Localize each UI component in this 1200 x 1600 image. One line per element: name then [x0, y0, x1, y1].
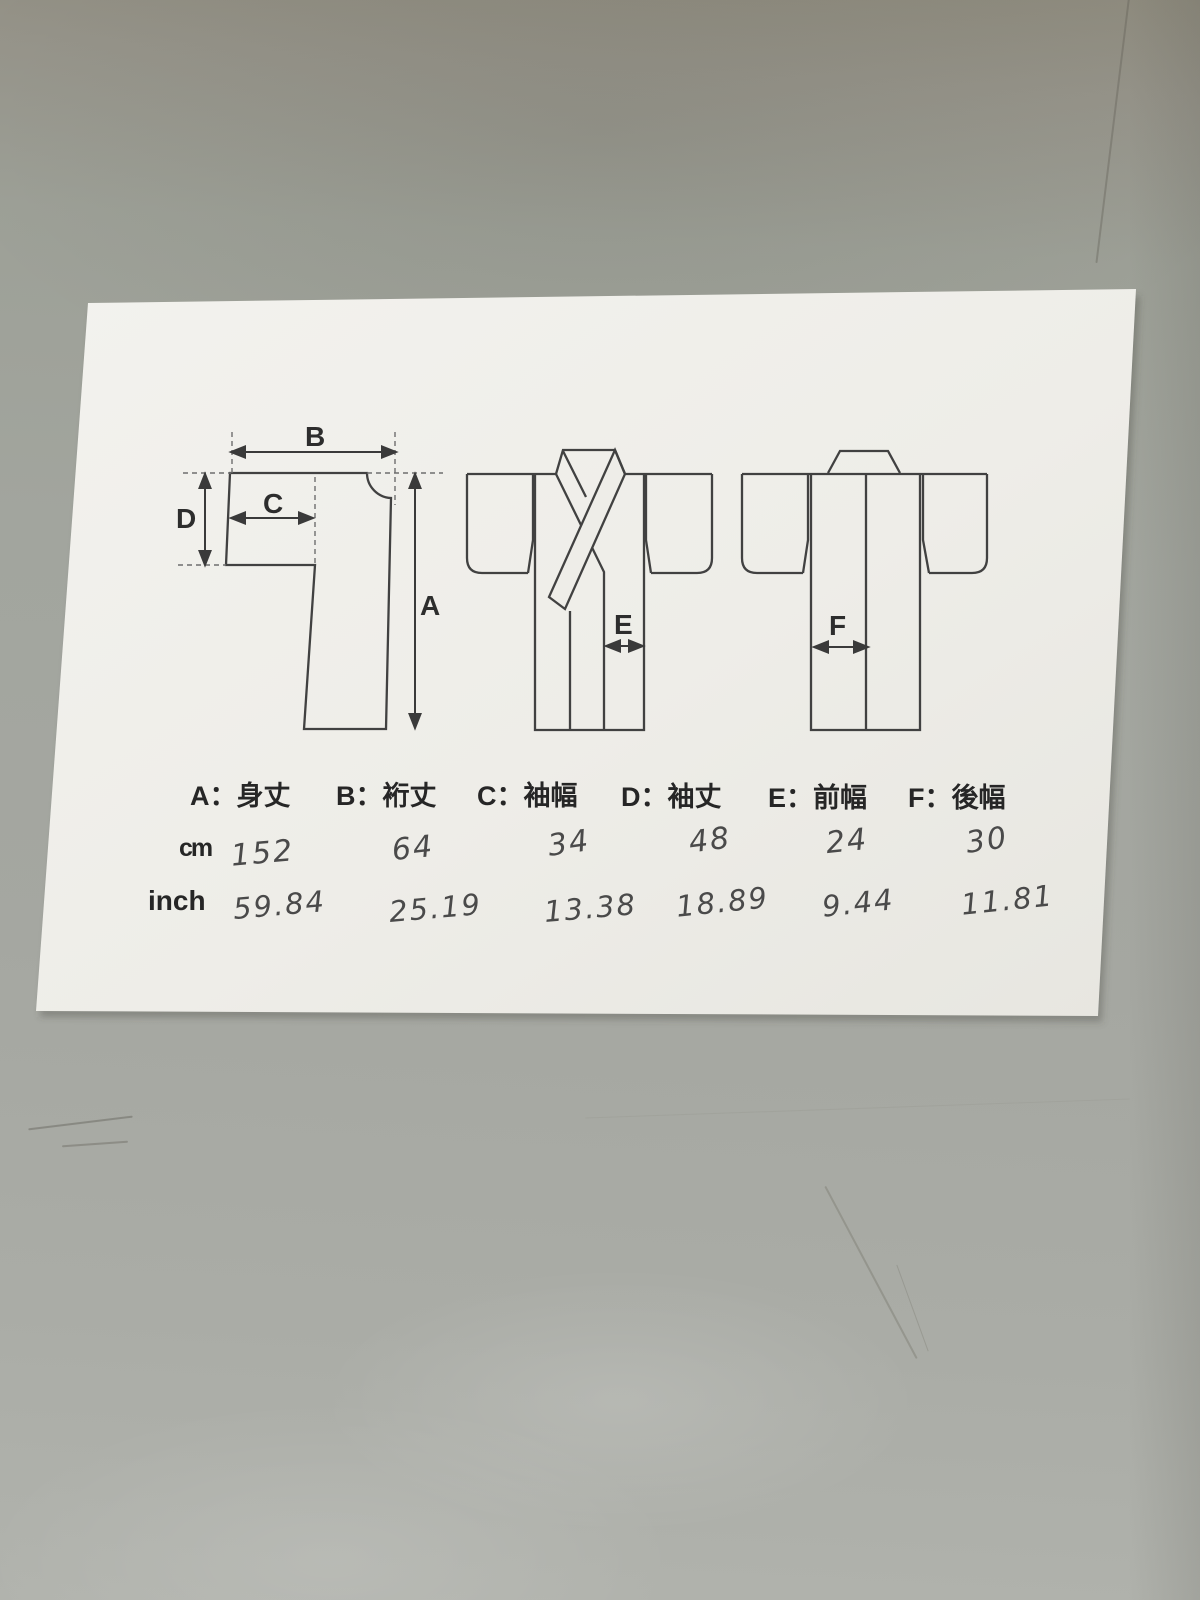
- cm-value-c: 34: [546, 826, 592, 862]
- dimension-label-e: E: [614, 611, 633, 639]
- table-surface: B C D A E F A：身丈 B：裄丈 C：袖幅 D：袖丈 E：前幅 F：後…: [0, 0, 1200, 1600]
- cm-value-b: 64: [391, 832, 436, 866]
- cm-value-f: 30: [964, 823, 1010, 859]
- dimension-label-f: F: [829, 612, 846, 640]
- dimension-label-a: A: [420, 592, 440, 620]
- legend-item-a: A：身丈: [190, 783, 291, 810]
- inch-value-c: 13.38: [543, 890, 638, 927]
- cm-value-a: 152: [230, 836, 296, 871]
- size-chart-sheet-graphics: [0, 0, 1200, 1600]
- dimension-label-b: B: [305, 423, 325, 451]
- inch-value-e: 9.44: [821, 885, 896, 921]
- inch-value-b: 25.19: [388, 890, 483, 927]
- cm-value-e: 24: [825, 825, 870, 859]
- legend-item-e: E：前幅: [768, 785, 867, 812]
- unit-label-inch: inch: [148, 887, 206, 915]
- unit-label-cm: cm: [179, 836, 211, 861]
- legend-item-f: F：後幅: [908, 785, 1006, 812]
- legend-item-d: D：袖丈: [621, 784, 722, 811]
- legend-item-b: B：裄丈: [336, 783, 437, 810]
- dimension-label-c: C: [263, 490, 283, 518]
- cm-value-d: 48: [687, 824, 733, 859]
- dimension-label-d: D: [176, 505, 196, 533]
- legend-item-c: C：袖幅: [477, 783, 578, 810]
- inch-value-a: 59.84: [232, 887, 327, 924]
